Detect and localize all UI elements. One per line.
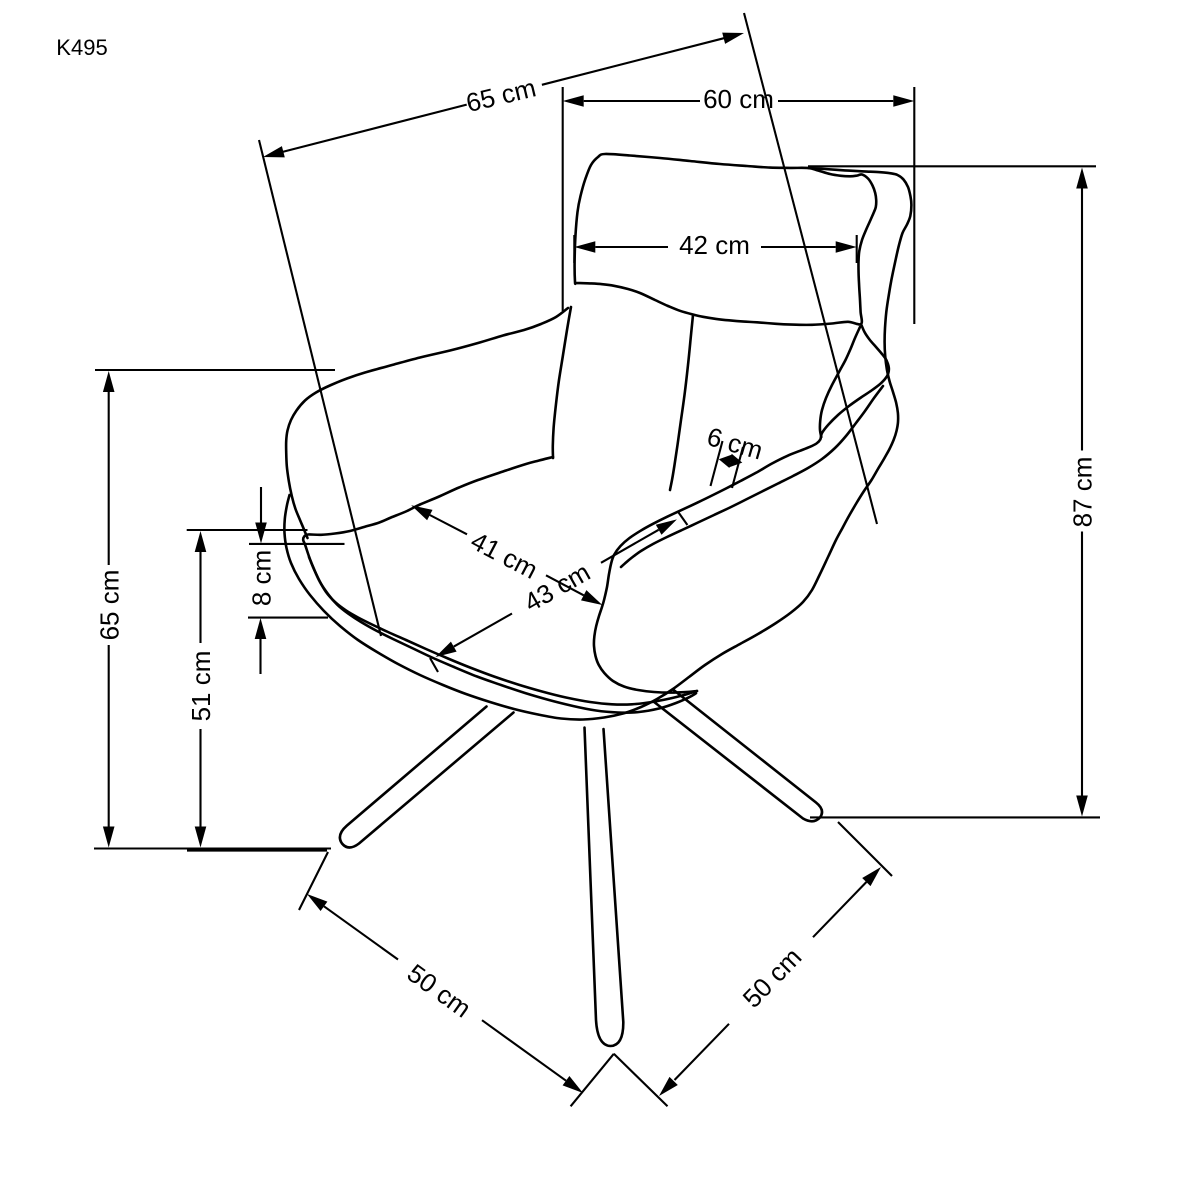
svg-text:65 cm: 65 cm (95, 570, 125, 641)
svg-text:60 cm: 60 cm (703, 84, 774, 114)
svg-text:51 cm: 51 cm (186, 651, 216, 722)
svg-text:8 cm: 8 cm (247, 550, 277, 606)
svg-text:K495: K495 (56, 35, 107, 60)
svg-text:87 cm: 87 cm (1068, 457, 1098, 528)
svg-text:42 cm: 42 cm (679, 230, 750, 260)
